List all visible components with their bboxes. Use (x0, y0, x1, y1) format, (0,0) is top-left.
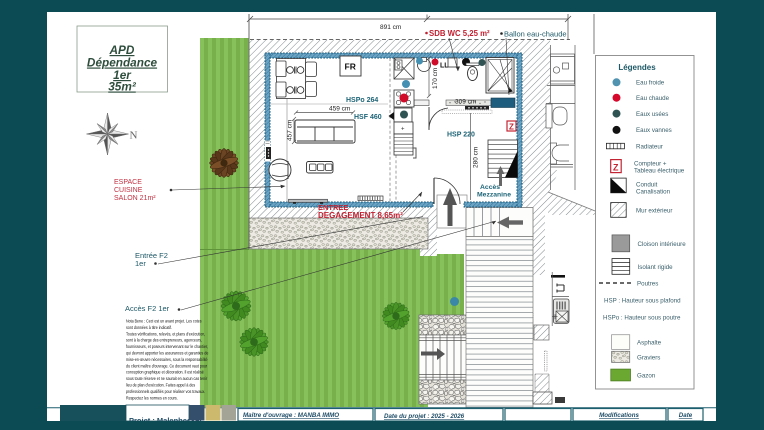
svg-text:Canalisation: Canalisation (636, 189, 671, 196)
svg-text:Eau chaude: Eau chaude (636, 95, 670, 102)
svg-text:170 cm: 170 cm (432, 68, 439, 89)
svg-text:qui devront apporter les assur: qui devront apporter les assurances et g… (126, 350, 209, 356)
svg-text:+: + (401, 127, 405, 133)
svg-text:Radiateur: Radiateur (636, 144, 663, 151)
svg-text:Accès F2 1er: Accès F2 1er (125, 304, 170, 313)
svg-text:Nota Bene : Ceci est un avant: Nota Bene : Ceci est un avant projet. Le… (126, 318, 202, 324)
svg-text:Asphalte: Asphalte (637, 340, 662, 347)
svg-text:Mezzanine: Mezzanine (477, 192, 511, 199)
svg-text:sont données à titre indicatif: sont données à titre indicatif. (126, 324, 172, 330)
svg-text:fournisseurs, et poseurs inter: fournisseurs, et poseurs intervenant sur… (126, 344, 208, 350)
svg-text:Accès: Accès (480, 184, 500, 191)
svg-text:309 cm: 309 cm (455, 99, 476, 106)
svg-text:Poutres: Poutres (637, 281, 658, 288)
svg-text:Eaux usées: Eaux usées (636, 111, 668, 118)
svg-text:459 cm: 459 cm (329, 106, 350, 113)
svg-text:Graviers: Graviers (637, 355, 660, 362)
svg-text:sous toute réserve et ne saura: sous toute réserve et ne saurait en aucu… (126, 376, 208, 382)
svg-text:Gazon: Gazon (637, 373, 656, 380)
svg-text:du client maître d'ouvrage. Ce: du client maître d'ouvrage. Ce document … (126, 363, 208, 369)
svg-text:Légendes: Légendes (618, 63, 656, 72)
svg-text:lieu de plan d'exécution. Fait: lieu de plan d'exécution. Faites appel à… (126, 382, 195, 388)
svg-text:sont à la charge des entrepren: sont à la charge des entrepreneurs, agen… (126, 337, 202, 343)
svg-text:Compteur +: Compteur + (634, 161, 667, 168)
svg-text:Respectez les normes en cours.: Respectez les normes en cours. (126, 395, 178, 401)
svg-text:280 cm: 280 cm (473, 147, 480, 168)
svg-text:HSP : Hauteur sous plafond: HSP : Hauteur sous plafond (604, 298, 681, 305)
svg-text:Cloison intérieure: Cloison intérieure (638, 241, 687, 248)
svg-text:Z: Z (509, 123, 514, 132)
svg-text:Conduit: Conduit (636, 182, 658, 189)
svg-text:Ballon eau-chaude: Ballon eau-chaude (504, 30, 567, 39)
svg-text:mise-en-œuvre nécessaires, sou: mise-en-œuvre nécessaires, sous la respo… (126, 356, 208, 362)
svg-text:N: N (130, 130, 138, 142)
svg-text:Eaux vannes: Eaux vannes (636, 127, 672, 134)
svg-text:Mur extérieur: Mur extérieur (636, 208, 672, 215)
svg-text:professionnels qualifiés pour: professionnels qualifiés pour réaliser v… (126, 388, 205, 394)
svg-text:CUISINE: CUISINE (114, 187, 143, 194)
svg-text:457 cm: 457 cm (287, 120, 294, 141)
svg-text:Date: Date (679, 412, 693, 419)
svg-text:1er: 1er (135, 259, 146, 268)
svg-text:DEGAGEMENT 8,65m²: DEGAGEMENT 8,65m² (318, 211, 403, 220)
svg-text:Maître d'ouvrage : MANBA IMMO: Maître d'ouvrage : MANBA IMMO (243, 412, 339, 419)
svg-text:Date du projet : 2025 - 2026: Date du projet : 2025 - 2026 (384, 413, 465, 420)
svg-text:35m²: 35m² (108, 80, 137, 94)
svg-text:Z: Z (613, 163, 619, 173)
svg-text:Isolant rigide: Isolant rigide (638, 264, 674, 271)
svg-text:891 cm: 891 cm (380, 24, 401, 31)
svg-text:Modifications: Modifications (599, 412, 639, 419)
svg-text:HSPo : Hauteur sous poutre: HSPo : Hauteur sous poutre (603, 314, 681, 321)
svg-text:FR: FR (345, 62, 356, 72)
svg-text:Toutes vérifications, relevés,: Toutes vérifications, relevés, et plans … (126, 331, 205, 337)
svg-text:SALON 21m²: SALON 21m² (114, 195, 156, 202)
svg-text:Eau froide: Eau froide (636, 80, 665, 87)
svg-text:HSPo 264: HSPo 264 (346, 97, 378, 104)
svg-text:ESPACE: ESPACE (114, 179, 142, 186)
svg-text:conception graphique et décora: conception graphique et décoration. Il e… (126, 369, 204, 375)
svg-text:HSF 460: HSF 460 (354, 114, 382, 121)
svg-text:Tableau électrique: Tableau électrique (634, 168, 685, 175)
svg-text:SDB WC 5,25 m²: SDB WC 5,25 m² (429, 29, 490, 38)
